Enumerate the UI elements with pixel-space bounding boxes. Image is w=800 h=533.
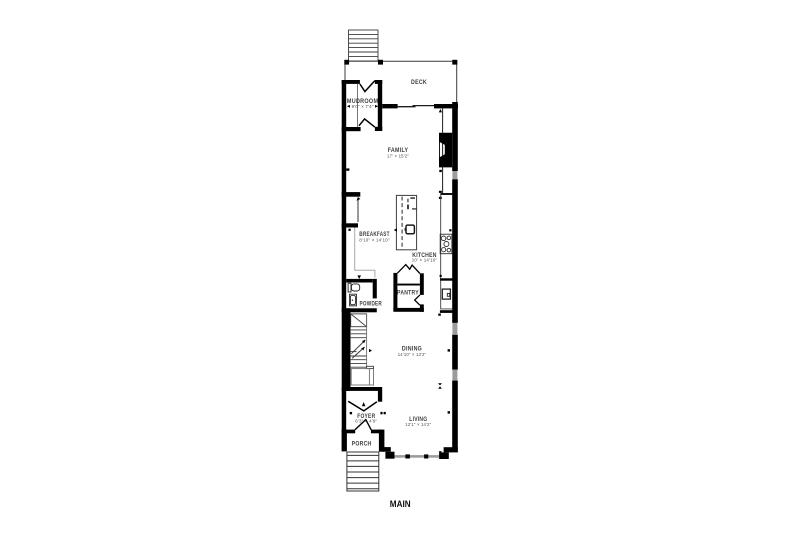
svg-text:14'10" × 13'2": 14'10" × 13'2"	[398, 352, 427, 357]
svg-text:12'1" × 14'2": 12'1" × 14'2"	[405, 422, 431, 427]
svg-text:9'0" × 7'4": 9'0" × 7'4"	[352, 104, 374, 109]
svg-text:PANTRY: PANTRY	[397, 291, 419, 297]
svg-text:MAIN: MAIN	[390, 499, 411, 510]
svg-text:17' × 15'2": 17' × 15'2"	[387, 153, 409, 158]
svg-text:10' × 14'10": 10' × 14'10"	[412, 258, 438, 263]
svg-text:8'10" × 14'10": 8'10" × 14'10"	[359, 238, 390, 243]
svg-text:DECK: DECK	[411, 80, 427, 86]
svg-text:PORCH: PORCH	[352, 441, 372, 447]
svg-text:POWDER: POWDER	[360, 301, 383, 307]
